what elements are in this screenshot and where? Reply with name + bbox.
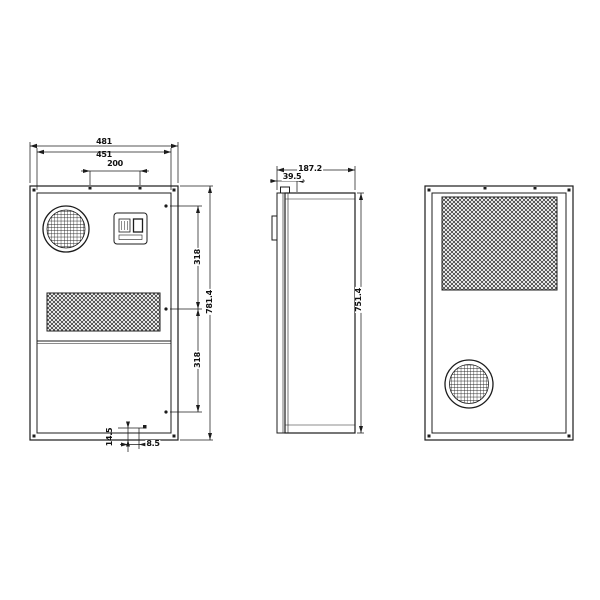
dim-side-body-height: 751.4: [355, 287, 363, 313]
dim-front-bottom-horizontal: 8.5: [145, 440, 160, 448]
dim-front-top-hole-spacing: 200: [107, 160, 123, 168]
drawing-linework: [0, 0, 600, 600]
dim-front-bottom-vertical: 14.5: [106, 428, 114, 447]
dim-front-lower-segment: 318: [194, 351, 202, 369]
side-door-panel: [277, 193, 285, 433]
back-air-inlet-grille: [442, 197, 557, 290]
engineering-drawing-canvas: 481 451 200 318 318 781.4 14.5 8.5 187.2…: [0, 0, 600, 600]
side-controller-protrusion: [272, 216, 277, 240]
dim-front-body-width: 451: [96, 151, 112, 159]
front-fan-grille: [43, 206, 89, 252]
side-top-lug: [281, 187, 290, 193]
dim-front-upper-segment: 318: [194, 248, 202, 266]
back-view: [425, 186, 573, 440]
back-fan-grille: [445, 360, 493, 408]
front-view: [30, 186, 178, 440]
front-controller-panel: [114, 213, 147, 244]
front-air-outlet-grille: [47, 293, 160, 331]
dim-front-flange-width: 481: [96, 138, 112, 146]
side-body-outline: [285, 193, 355, 433]
side-view: [272, 187, 355, 433]
dim-side-front-depth: 39.5: [282, 173, 303, 181]
dim-front-flange-height: 781.4: [206, 289, 214, 315]
side-dimension-lines: [270, 166, 364, 433]
